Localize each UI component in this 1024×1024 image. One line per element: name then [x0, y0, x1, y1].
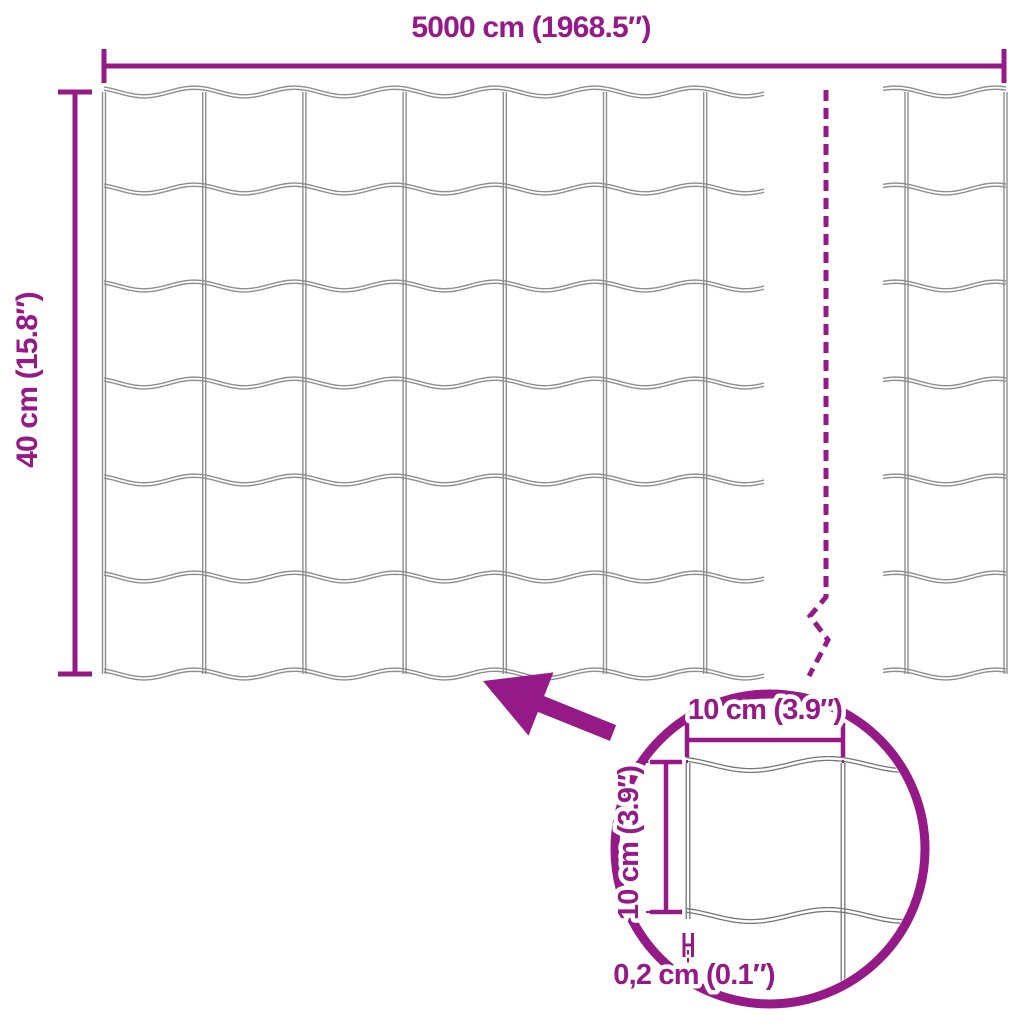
detail-width-dimension-line: [687, 723, 843, 757]
mesh-wire: [883, 380, 1006, 389]
detail-height-dimension-line: [650, 762, 682, 912]
detail-height-label: 10 cm (3.9″): [613, 766, 645, 920]
width-dimension: 5000 cm (1968.5″): [104, 11, 1004, 83]
fence-roll-dimension-diagram: 5000 cm (1968.5″) 40 cm (15.8″) 10 cm (3…: [0, 0, 1024, 1024]
mesh-wire: [883, 671, 1006, 680]
mesh-wire: [686, 908, 938, 920]
mesh-wire: [883, 574, 1006, 583]
height-dimension-label: 40 cm (15.8″): [11, 292, 44, 468]
height-dimension-line: [58, 92, 92, 674]
wire-mesh-roll: [103, 86, 1008, 680]
mesh-break-dashed-line: [809, 90, 828, 676]
wire-thickness-label: 0,2 cm (0.1″): [613, 959, 775, 991]
diagram-canvas: 5000 cm (1968.5″) 40 cm (15.8″) 10 cm (3…: [0, 0, 1024, 1024]
zoom-detail: 10 cm (3.9″) 10 cm (3.9″) 0,2 cm (0.1″): [613, 694, 938, 1004]
mesh-wire: [883, 89, 1006, 98]
mesh-wire: [883, 477, 1006, 486]
width-dimension-label: 5000 cm (1968.5″): [411, 11, 650, 44]
width-dimension-line: [104, 49, 1004, 83]
mesh-wire: [686, 911, 938, 923]
extension-lines: [630, 720, 843, 968]
mesh-wire: [883, 186, 1006, 195]
height-dimension: 40 cm (15.8″): [11, 92, 92, 674]
detail-width-label: 10 cm (3.9″): [688, 694, 842, 726]
zoom-arrow-icon: [483, 672, 616, 741]
mesh-wire: [883, 283, 1006, 292]
